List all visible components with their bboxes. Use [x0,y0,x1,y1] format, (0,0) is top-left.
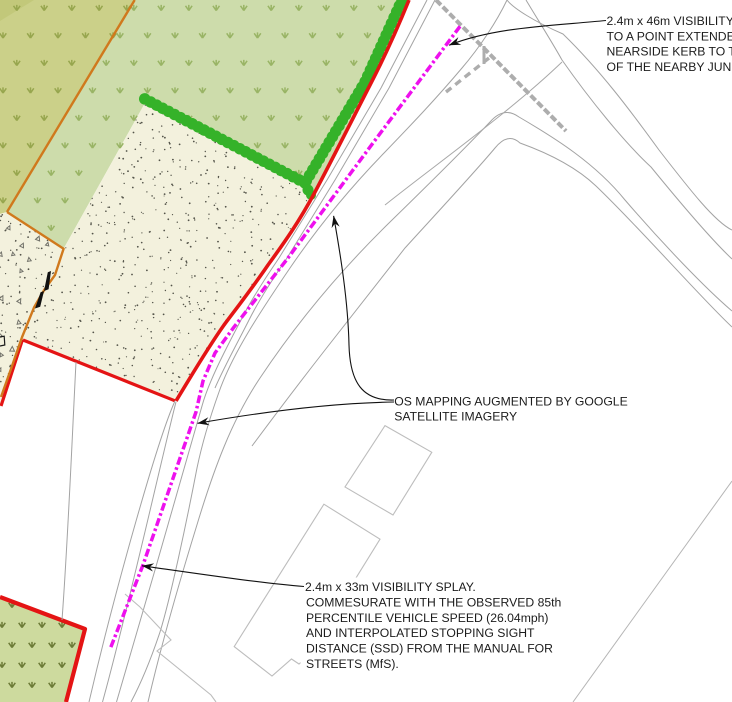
svg-text:OF THE NEARBY JUNCTION.: OF THE NEARBY JUNCTION. [607,60,732,74]
svg-text:SATELLITE IMAGERY: SATELLITE IMAGERY [394,410,517,424]
svg-text:PERCENTILE VEHICLE SPEED (26.0: PERCENTILE VEHICLE SPEED (26.04mph) [306,611,548,625]
svg-text:OS MAPPING AUGMENTED BY GOOGLE: OS MAPPING AUGMENTED BY GOOGLE [394,394,627,408]
svg-text:2.4m x 46m VISIBILITY SPLAY: 2.4m x 46m VISIBILITY SPLAY [607,14,732,28]
svg-text:2.4m x 33m VISIBILITY SPLAY.: 2.4m x 33m VISIBILITY SPLAY. [305,580,476,594]
svg-text:COMMESURATE WITH THE OBSERVED: COMMESURATE WITH THE OBSERVED 85th [306,595,561,609]
svg-text:NEARSIDE KERB TO THE CENTRE: NEARSIDE KERB TO THE CENTRE [607,45,732,59]
svg-text:TO A POINT EXTENDED FROM THE: TO A POINT EXTENDED FROM THE [607,29,732,43]
svg-text:STREETS (MfS).: STREETS (MfS). [306,657,399,671]
svg-text:DISTANCE (SSD) FROM THE MANUAL: DISTANCE (SSD) FROM THE MANUAL FOR [306,642,553,656]
svg-text:AND INTERPOLATED STOPPING SIGH: AND INTERPOLATED STOPPING SIGHT [306,626,535,640]
